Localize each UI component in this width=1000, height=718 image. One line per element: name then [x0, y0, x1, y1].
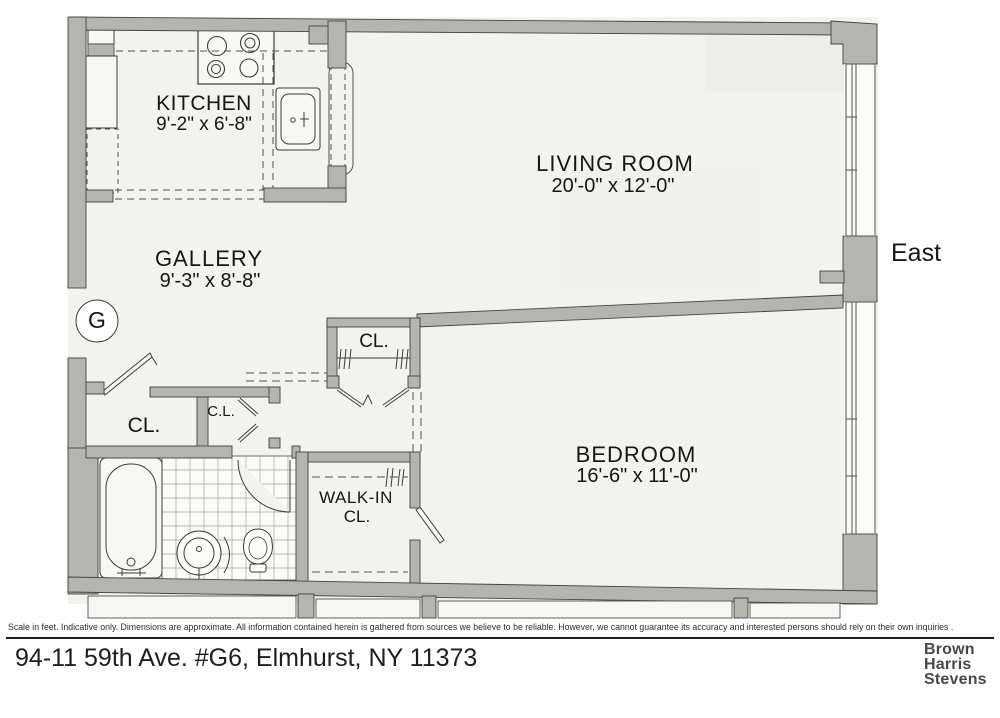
bedroom-closet-label: CL. — [359, 332, 389, 351]
hall-closet-label: C.L. — [207, 404, 235, 419]
wall-south-divider-2 — [422, 596, 436, 618]
wall-west-lower — [68, 358, 86, 460]
wall-kitchen-south — [264, 188, 346, 202]
kitchen-sink-icon — [276, 88, 320, 150]
kitchen-dims: 9'-2" x 6'-8" — [156, 115, 252, 134]
floorplan-canvas — [0, 0, 1000, 718]
wall-entry-stub — [86, 382, 104, 394]
wall-walkin-top — [308, 452, 420, 462]
wall-walkin-right-lower — [410, 540, 420, 586]
wall-kitchen-divider-top — [328, 21, 346, 68]
wall-bath-north — [86, 446, 232, 458]
brokerage-logo: Brown Harris Stevens — [924, 642, 987, 687]
walkin-closet-label-line2: CL. — [344, 508, 370, 525]
living-room-dims: 20'-0" x 12'-0" — [551, 176, 674, 196]
brokerage-logo-line1: Brown — [924, 642, 987, 657]
wall-hall-closet-stub-top — [269, 387, 280, 403]
wall-hall-closet-stub-bottom — [269, 438, 280, 448]
wall-bedroom-closet-jamb-right — [408, 376, 420, 388]
wall-bath-walkin-divider — [296, 452, 308, 582]
wall-east-pier — [843, 236, 877, 302]
wall-south-divider-1 — [298, 594, 314, 618]
wall-bedroom-closet-jamb-left — [327, 376, 339, 388]
gallery-dims: 9'-3" x 8'-8" — [160, 271, 261, 291]
kitchen-label: KITCHEN — [156, 93, 252, 114]
wall-west-upper — [68, 17, 86, 288]
wall-walkin-right-upper — [410, 452, 420, 508]
wall-kitchen-south-stub — [86, 190, 113, 202]
address-title: 94-11 59th Ave. #G6, Elmhurst, NY 11373 — [15, 644, 477, 673]
wall-gallery-closet-top — [150, 387, 280, 397]
brokerage-logo-line3: Stevens — [924, 672, 987, 687]
orientation-label: East — [891, 241, 941, 266]
gallery-label: GALLERY — [155, 248, 263, 270]
wall-kitchen-divider-step — [309, 26, 328, 44]
unit-marker-label: G — [88, 309, 106, 332]
floorplan-page: KITCHEN 9'-2" x 6'-8" LIVING ROOM 20'-0"… — [0, 0, 1000, 718]
window-living-room — [844, 64, 876, 236]
bedroom-label: BEDROOM — [576, 444, 697, 466]
wall-east-stub — [820, 271, 844, 283]
wall-west-bath — [68, 448, 98, 594]
wall-south-divider-3 — [734, 598, 748, 618]
brokerage-logo-line2: Harris — [924, 657, 987, 672]
window-bedroom — [844, 302, 876, 534]
living-room-label: LIVING ROOM — [536, 153, 694, 175]
bedroom-dims: 16'-6" x 11'-0" — [576, 466, 698, 486]
disclaimer-text: Scale in feet. Indicative only. Dimensio… — [8, 622, 953, 633]
footer-divider — [6, 637, 994, 639]
walkin-closet-label-line1: WALK-IN — [319, 489, 393, 506]
entry-closet-label: CL. — [128, 415, 161, 436]
bathtub-icon — [100, 458, 162, 578]
wall-bedroom-closet-top — [327, 318, 420, 327]
